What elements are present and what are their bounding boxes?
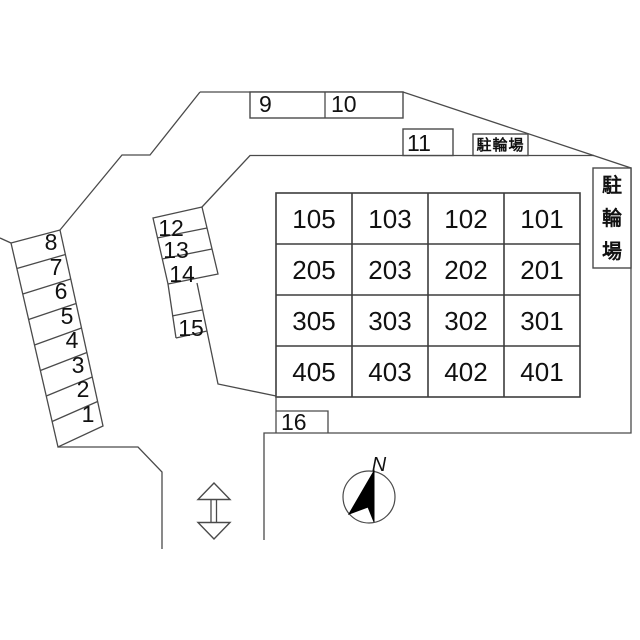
parking-space-8-label: 8 [45,229,58,255]
boundary-upper-left [60,92,200,230]
parking-space-7-label: 7 [50,254,63,280]
two-way-arrow-icon [198,483,230,539]
parking-space-10-label: 10 [331,91,357,117]
parking-space-3-label: 3 [72,352,85,378]
room-grid: 105 103 102 101 205 203 202 201 305 303 … [276,193,580,397]
compass-needle [349,471,374,522]
left-parking-stack: 8 7 6 5 4 3 2 1 [11,229,103,447]
stall-strip-left-edge [168,284,176,338]
room-201-label: 201 [520,255,563,285]
parking-site-plan: 8 7 6 5 4 3 2 1 12 13 14 15 9 10 11 駐輪場 … [0,0,640,640]
parking-space-5-label: 5 [61,303,74,329]
boundary-right-bottom [200,92,631,540]
parking-space-6-label: 6 [55,278,68,304]
north-label: N [372,454,387,476]
boundary-left-edge-tick [0,238,11,243]
bicycle-parking-right-char-1: 駐 [602,173,622,197]
parking-space-14-label: 14 [169,261,195,287]
room-303-label: 303 [368,306,411,336]
bicycle-parking-right: 駐 輪 場 [593,168,631,268]
spaces-9-10-box [250,92,403,118]
parking-space-13-label: 13 [163,237,189,263]
room-205-label: 205 [292,255,335,285]
down-arrowhead [198,523,230,540]
boundary-inner-road [202,156,594,208]
boundary-lower-left [58,447,162,549]
up-arrowhead [198,483,230,500]
room-402-label: 402 [444,357,487,387]
room-305-label: 305 [292,306,335,336]
room-302-label: 302 [444,306,487,336]
room-403-label: 403 [368,357,411,387]
space-16-box: 16 [276,396,328,435]
site-plan-drawing: 8 7 6 5 4 3 2 1 12 13 14 15 9 10 11 駐輪場 … [0,0,640,640]
parking-space-15-label: 15 [178,315,204,341]
north-compass-icon: N [343,454,395,523]
parking-space-1-label: 1 [82,401,95,427]
parking-space-4-label: 4 [66,327,79,353]
parking-space-16-label: 16 [281,409,307,435]
room-202-label: 202 [444,255,487,285]
room-203-label: 203 [368,255,411,285]
top-parking-row: 9 10 11 [250,91,453,156]
room-103-label: 103 [368,204,411,234]
room-102-label: 102 [444,204,487,234]
parking-space-2-label: 2 [77,376,90,402]
room-105-label: 105 [292,204,335,234]
middle-parking-stack: 12 13 14 15 [153,207,218,341]
bicycle-parking-right-char-3: 場 [602,240,622,263]
parking-space-11-label: 11 [407,130,431,156]
arrow-shaft [211,500,217,523]
room-301-label: 301 [520,306,563,336]
bicycle-parking-right-char-2: 輪 [602,206,623,230]
room-401-label: 401 [520,357,563,387]
bicycle-parking-top-label: 駐輪場 [476,136,524,154]
room-101-label: 101 [520,204,563,234]
parking-space-9-label: 9 [259,91,272,117]
bicycle-parking-top: 駐輪場 [473,134,528,156]
room-405-label: 405 [292,357,335,387]
boundary-inner-diagonal [197,283,276,396]
